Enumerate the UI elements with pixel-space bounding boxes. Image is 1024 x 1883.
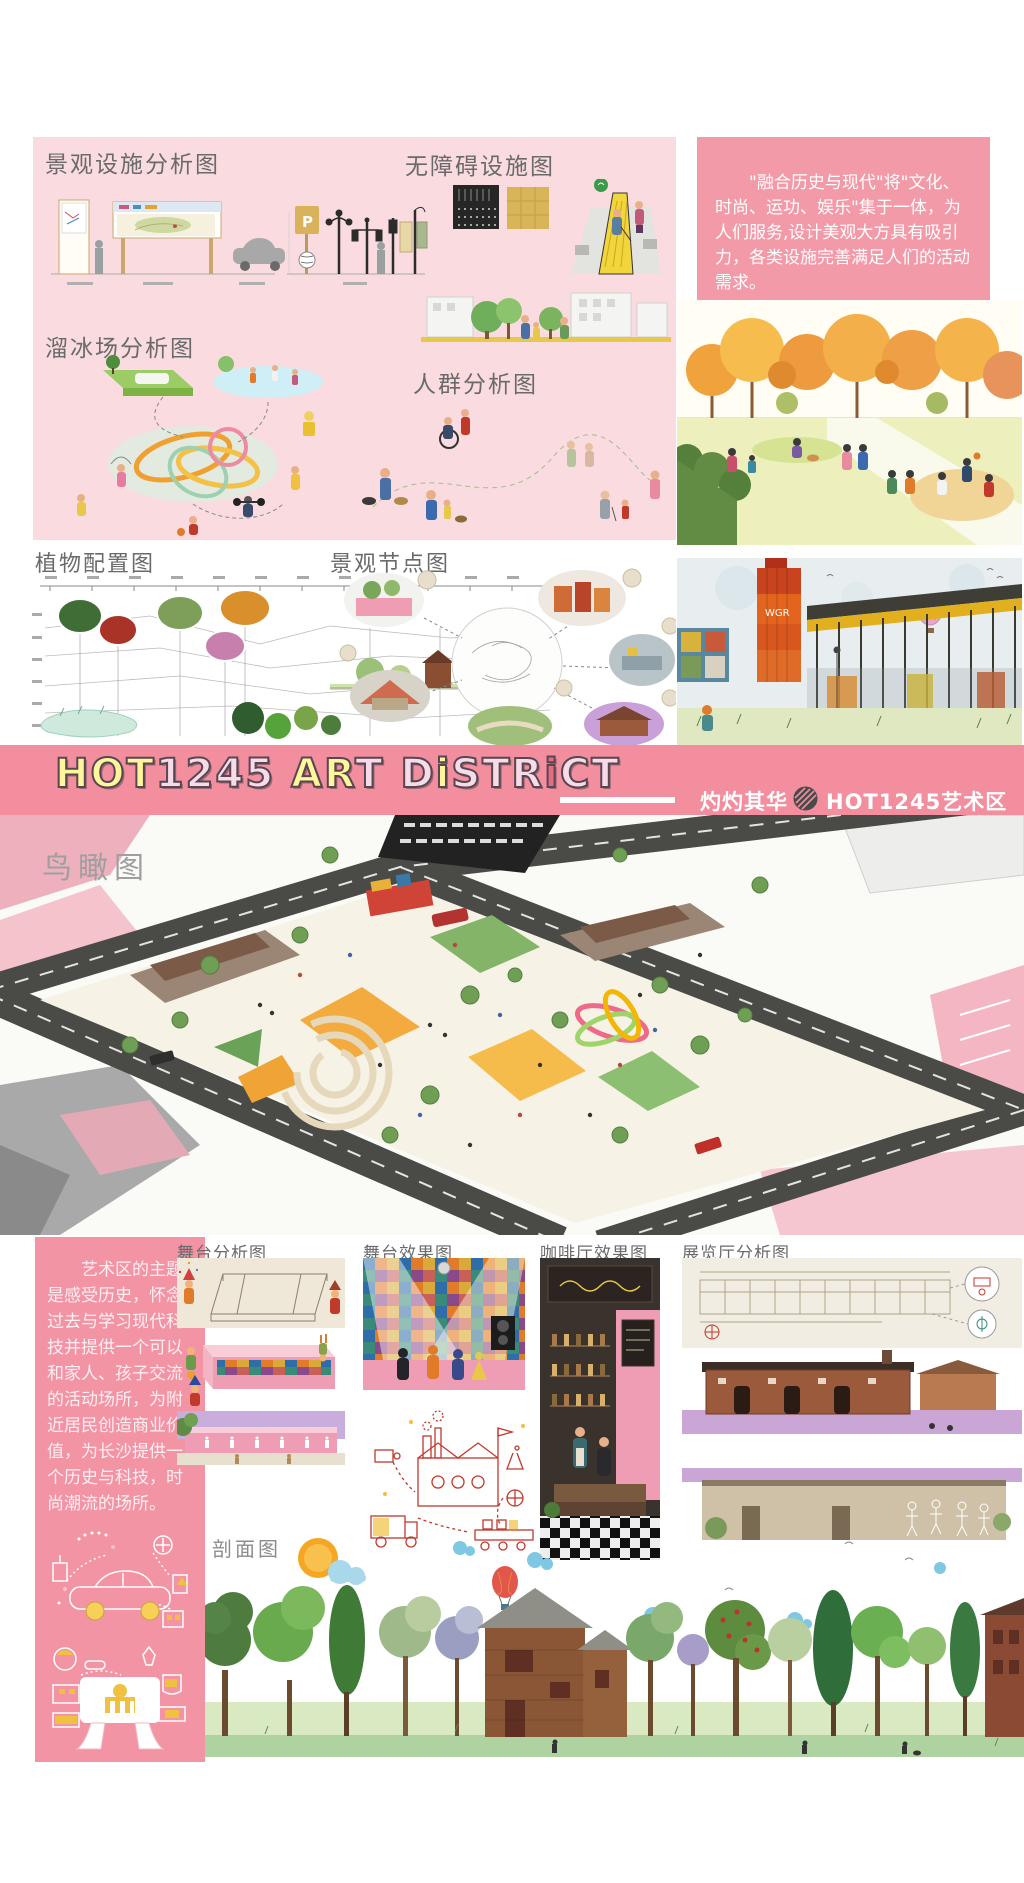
- title-banner: HOT1245 ART DiSTRiCT 灼灼其华 HOT1245艺术区: [0, 745, 1024, 815]
- exhibition-analysis-image: [682, 1258, 1022, 1560]
- disco-ball: [438, 1262, 450, 1274]
- node-bubble-facade: [609, 634, 675, 686]
- person-silhouette: [377, 242, 385, 274]
- wheel-icon: [705, 1325, 719, 1339]
- customer: [597, 1437, 611, 1476]
- detail-callout: [968, 1310, 996, 1338]
- banner-lamp: [400, 207, 427, 274]
- family-group: [426, 490, 467, 523]
- crossing-scene: [571, 179, 661, 274]
- stage-model-image: [177, 1331, 345, 1408]
- left-containers: [677, 628, 729, 682]
- detail-callout: [965, 1267, 999, 1301]
- trees: [471, 298, 563, 339]
- pond: [213, 356, 323, 398]
- stage-sketch-image: [177, 1258, 345, 1328]
- girl-figure: [702, 705, 713, 731]
- aerial-view-label: 鸟瞰图: [42, 843, 150, 887]
- tactile-paving-photo: [453, 185, 499, 229]
- intro-text-box: "融合历史与现代"将"文化、时尚、运功、娱乐"集于一体，为人们服务,设计美观大方…: [697, 137, 990, 303]
- banner-tagline: 灼灼其华: [700, 786, 788, 816]
- aerial-view-rendering: [0, 815, 1024, 1235]
- handstand-figure: [319, 1334, 327, 1362]
- node-bubble-street: [350, 670, 430, 722]
- node-bubble-brickhouse: [584, 702, 664, 746]
- barrier-free-title: 无障碍设施图: [405, 147, 555, 181]
- stage-elevation-image: [177, 1411, 345, 1465]
- plant: [544, 1502, 560, 1518]
- street-lamps: [326, 210, 397, 274]
- green-logo-icon: [594, 179, 608, 192]
- wheelchair-user: [440, 417, 458, 448]
- tablet-hands-doodle: [45, 1645, 195, 1750]
- section-drawing: [205, 1520, 1024, 1765]
- rink-platform: [103, 355, 193, 396]
- striped-circle-logo-icon: [792, 785, 819, 812]
- street-scene-illustration: [421, 289, 671, 351]
- signage-lamps-illustration: P: [43, 182, 428, 300]
- right-building: [980, 1598, 1024, 1737]
- pond-sketch: [41, 706, 137, 737]
- cafe-render-image: [540, 1258, 660, 1560]
- aerial-view: 鸟瞰图: [0, 815, 1024, 1235]
- plant-photos: [58, 590, 270, 661]
- tactile-tile: [507, 187, 549, 229]
- banner-wordmark: HOT1245 ART DiSTRiCT: [55, 751, 621, 797]
- clown-figure: [189, 1375, 201, 1406]
- menu-board: [622, 1320, 654, 1366]
- analysis-panel: 景观设施分析图 无障碍设施图 溜冰场分析图 人群分析图 P: [33, 137, 676, 540]
- cloud-icon: [328, 1560, 366, 1585]
- node-bubble-courtyard: [468, 706, 552, 746]
- elderly-couple: [567, 441, 594, 467]
- brick-barn: [682, 1350, 1022, 1434]
- person-silhouette: [95, 240, 103, 274]
- node-bubble-containers: [538, 570, 626, 626]
- svg-text:P: P: [302, 213, 313, 231]
- container-park-rendering: WGR: [677, 558, 1022, 745]
- landscape-nodes-diagram: [332, 568, 676, 746]
- caregiver: [461, 409, 470, 435]
- car-silhouette: [233, 238, 285, 271]
- companion: [635, 201, 644, 233]
- grandma-and-child: [600, 491, 629, 522]
- presentation-poster: 景观设施分析图 无障碍设施图 溜冰场分析图 人群分析图 P: [0, 0, 1024, 1883]
- shrub-spheres: [232, 702, 341, 739]
- man-with-dogs: [362, 468, 408, 505]
- section-house: [477, 1588, 633, 1737]
- wgr-tower: WGR: [757, 558, 801, 682]
- park-illustration: [677, 300, 1022, 545]
- robot-figure: [303, 422, 315, 436]
- theme-paragraph: 艺术区的主题是感受历史，怀念过去与学习现代科技并提供一个可以和家人、孩子交流的活…: [47, 1257, 193, 1517]
- crowd-illustration: [353, 387, 673, 537]
- barrier-free-illustration: [451, 179, 676, 291]
- smart-car-doodle: [45, 1525, 195, 1640]
- parking-sign: P: [295, 206, 319, 274]
- intro-paragraph: "融合历史与现代"将"文化、时尚、运功、娱乐"集于一体，为人们服务,设计美观大方…: [715, 171, 972, 296]
- stage-render-image: [363, 1258, 525, 1390]
- node-bubble-planter: [344, 573, 424, 627]
- divider-line: [560, 797, 675, 803]
- landscape-facilities-title: 景观设施分析图: [45, 145, 220, 179]
- woman-figure: [650, 471, 660, 500]
- ice-rink-illustration: [43, 352, 343, 537]
- clown-figure: [186, 1347, 196, 1379]
- banner-brand: HOT1245艺术区: [826, 786, 1007, 816]
- tower-sign-text: WGR: [765, 608, 790, 619]
